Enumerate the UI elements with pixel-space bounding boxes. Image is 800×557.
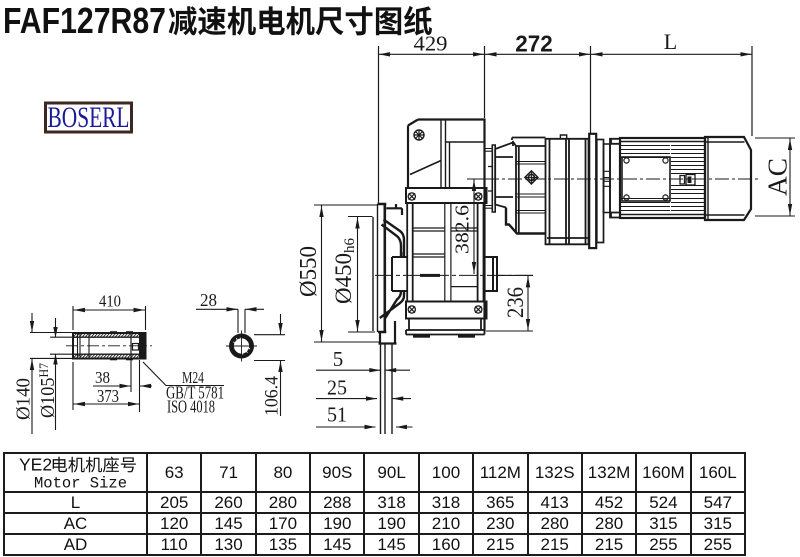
svg-text:373: 373 [97, 386, 119, 406]
svg-text:AC: AC [763, 158, 793, 196]
svg-text:38: 38 [95, 368, 110, 387]
svg-text:5: 5 [333, 347, 344, 371]
svg-text:ISO 4018: ISO 4018 [167, 397, 215, 417]
svg-text:Motor Size: Motor Size [34, 474, 127, 491]
svg-text:L: L [664, 29, 677, 54]
svg-text:25: 25 [327, 376, 347, 400]
svg-text:429: 429 [414, 32, 448, 56]
svg-text:Ø550: Ø550 [296, 246, 322, 297]
svg-text:272: 272 [515, 31, 553, 57]
svg-text:Ø450h6: Ø450h6 [331, 238, 358, 304]
svg-text:410: 410 [99, 292, 121, 311]
svg-text:Ø140: Ø140 [13, 378, 35, 420]
svg-text:YE2: YE2 [19, 454, 52, 474]
svg-text:51: 51 [327, 403, 347, 427]
svg-text:FAF127R87: FAF127R87 [3, 0, 166, 41]
svg-text:28: 28 [200, 290, 217, 310]
svg-text:106.4: 106.4 [262, 376, 283, 416]
svg-text:BOSERL: BOSERL [48, 101, 130, 134]
svg-text:236: 236 [503, 287, 528, 318]
svg-text:382.6: 382.6 [452, 205, 474, 254]
